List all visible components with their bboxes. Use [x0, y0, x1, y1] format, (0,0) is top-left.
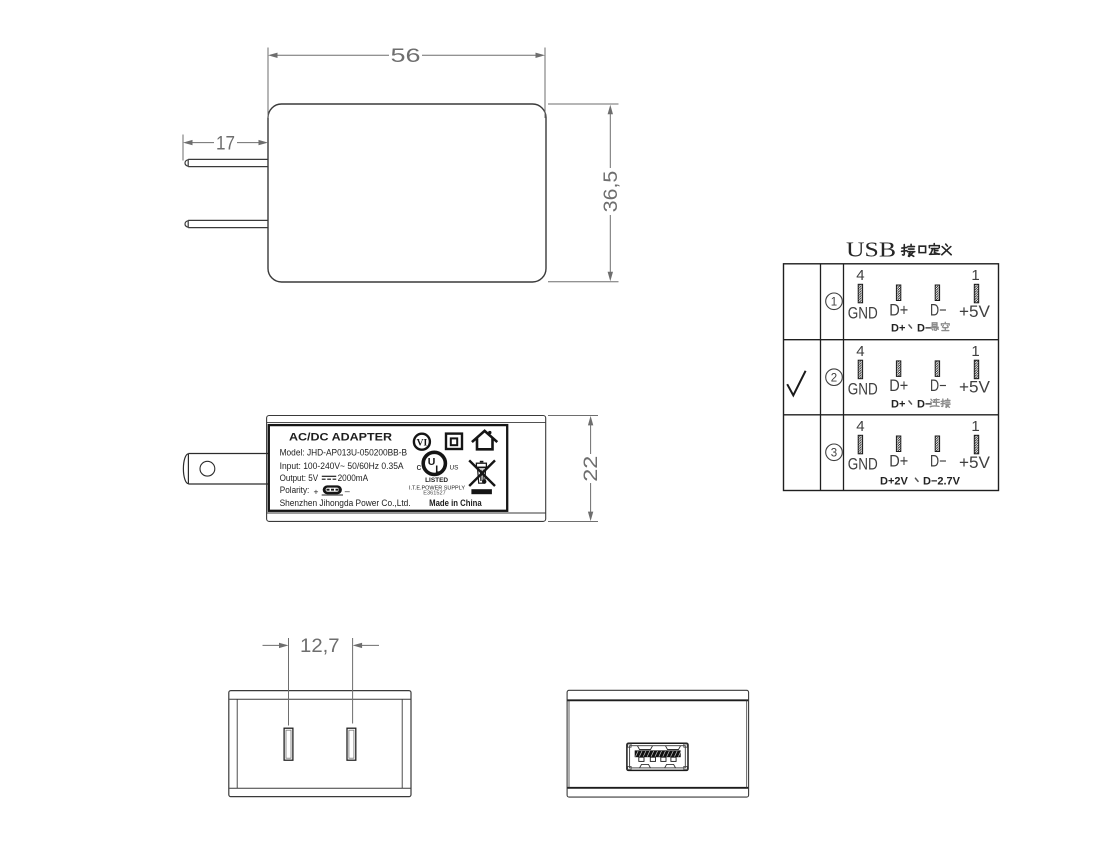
svg-text:US: US: [450, 465, 459, 472]
svg-text:Shenzhen Jihongda Power Co.,Lt: Shenzhen Jihongda Power Co.,Ltd.: [280, 498, 411, 508]
svg-text:Made in China: Made in China: [429, 498, 482, 508]
svg-text:D+: D+: [891, 398, 905, 410]
svg-text:c: c: [417, 462, 422, 473]
svg-text:2000mA: 2000mA: [338, 473, 369, 483]
svg-text:–: –: [345, 486, 350, 496]
svg-text:D−: D−: [917, 322, 931, 334]
svg-text:E361527: E361527: [423, 490, 445, 496]
svg-text:D−: D−: [930, 377, 947, 395]
svg-text:+5V: +5V: [959, 303, 990, 321]
svg-text:L: L: [435, 463, 442, 475]
svg-text:17: 17: [216, 132, 235, 154]
svg-text:22: 22: [580, 456, 602, 482]
svg-text:1: 1: [831, 297, 837, 309]
svg-text:AC/DC ADAPTER: AC/DC ADAPTER: [289, 432, 392, 444]
svg-text:D+: D+: [889, 377, 908, 395]
svg-text:12,7: 12,7: [300, 635, 340, 657]
svg-text:D−2.7V: D−2.7V: [923, 476, 961, 488]
svg-text:USB: USB: [846, 238, 896, 262]
svg-text:D−: D−: [930, 452, 947, 470]
svg-text:Model: JHD-AP013U-050200BB-B: Model: JHD-AP013U-050200BB-B: [280, 447, 408, 457]
svg-text:Polarity:: Polarity:: [280, 485, 310, 495]
svg-text:VI: VI: [417, 438, 428, 448]
svg-text:D−: D−: [930, 301, 947, 319]
svg-text:4: 4: [856, 343, 864, 360]
svg-text:4: 4: [856, 418, 864, 435]
svg-text:D+: D+: [889, 452, 908, 470]
svg-text:+5V: +5V: [959, 454, 990, 472]
svg-text:1: 1: [971, 418, 979, 435]
svg-text:GND: GND: [848, 381, 878, 399]
svg-text:1: 1: [971, 267, 979, 284]
svg-text:56: 56: [391, 45, 421, 67]
svg-text:D+: D+: [889, 301, 908, 319]
svg-text:1: 1: [971, 343, 979, 360]
svg-text:3: 3: [831, 448, 837, 460]
svg-text:D+: D+: [891, 322, 905, 334]
svg-text:Output: 5V: Output: 5V: [280, 473, 319, 483]
svg-text:+5V: +5V: [959, 379, 990, 397]
svg-text:2: 2: [831, 372, 837, 384]
svg-text:GND: GND: [848, 305, 878, 323]
svg-text:Input: 100-240V~ 50/60Hz 0.3: Input: 100-240V~ 50/60Hz 0.35A: [280, 461, 404, 471]
svg-text:+: +: [314, 487, 319, 497]
svg-text:LISTED: LISTED: [425, 477, 448, 484]
svg-text:D−: D−: [917, 398, 931, 410]
svg-text:D+2V: D+2V: [880, 476, 908, 488]
svg-text:36,5: 36,5: [600, 171, 622, 213]
svg-text:4: 4: [856, 267, 864, 284]
svg-text:GND: GND: [848, 456, 878, 474]
